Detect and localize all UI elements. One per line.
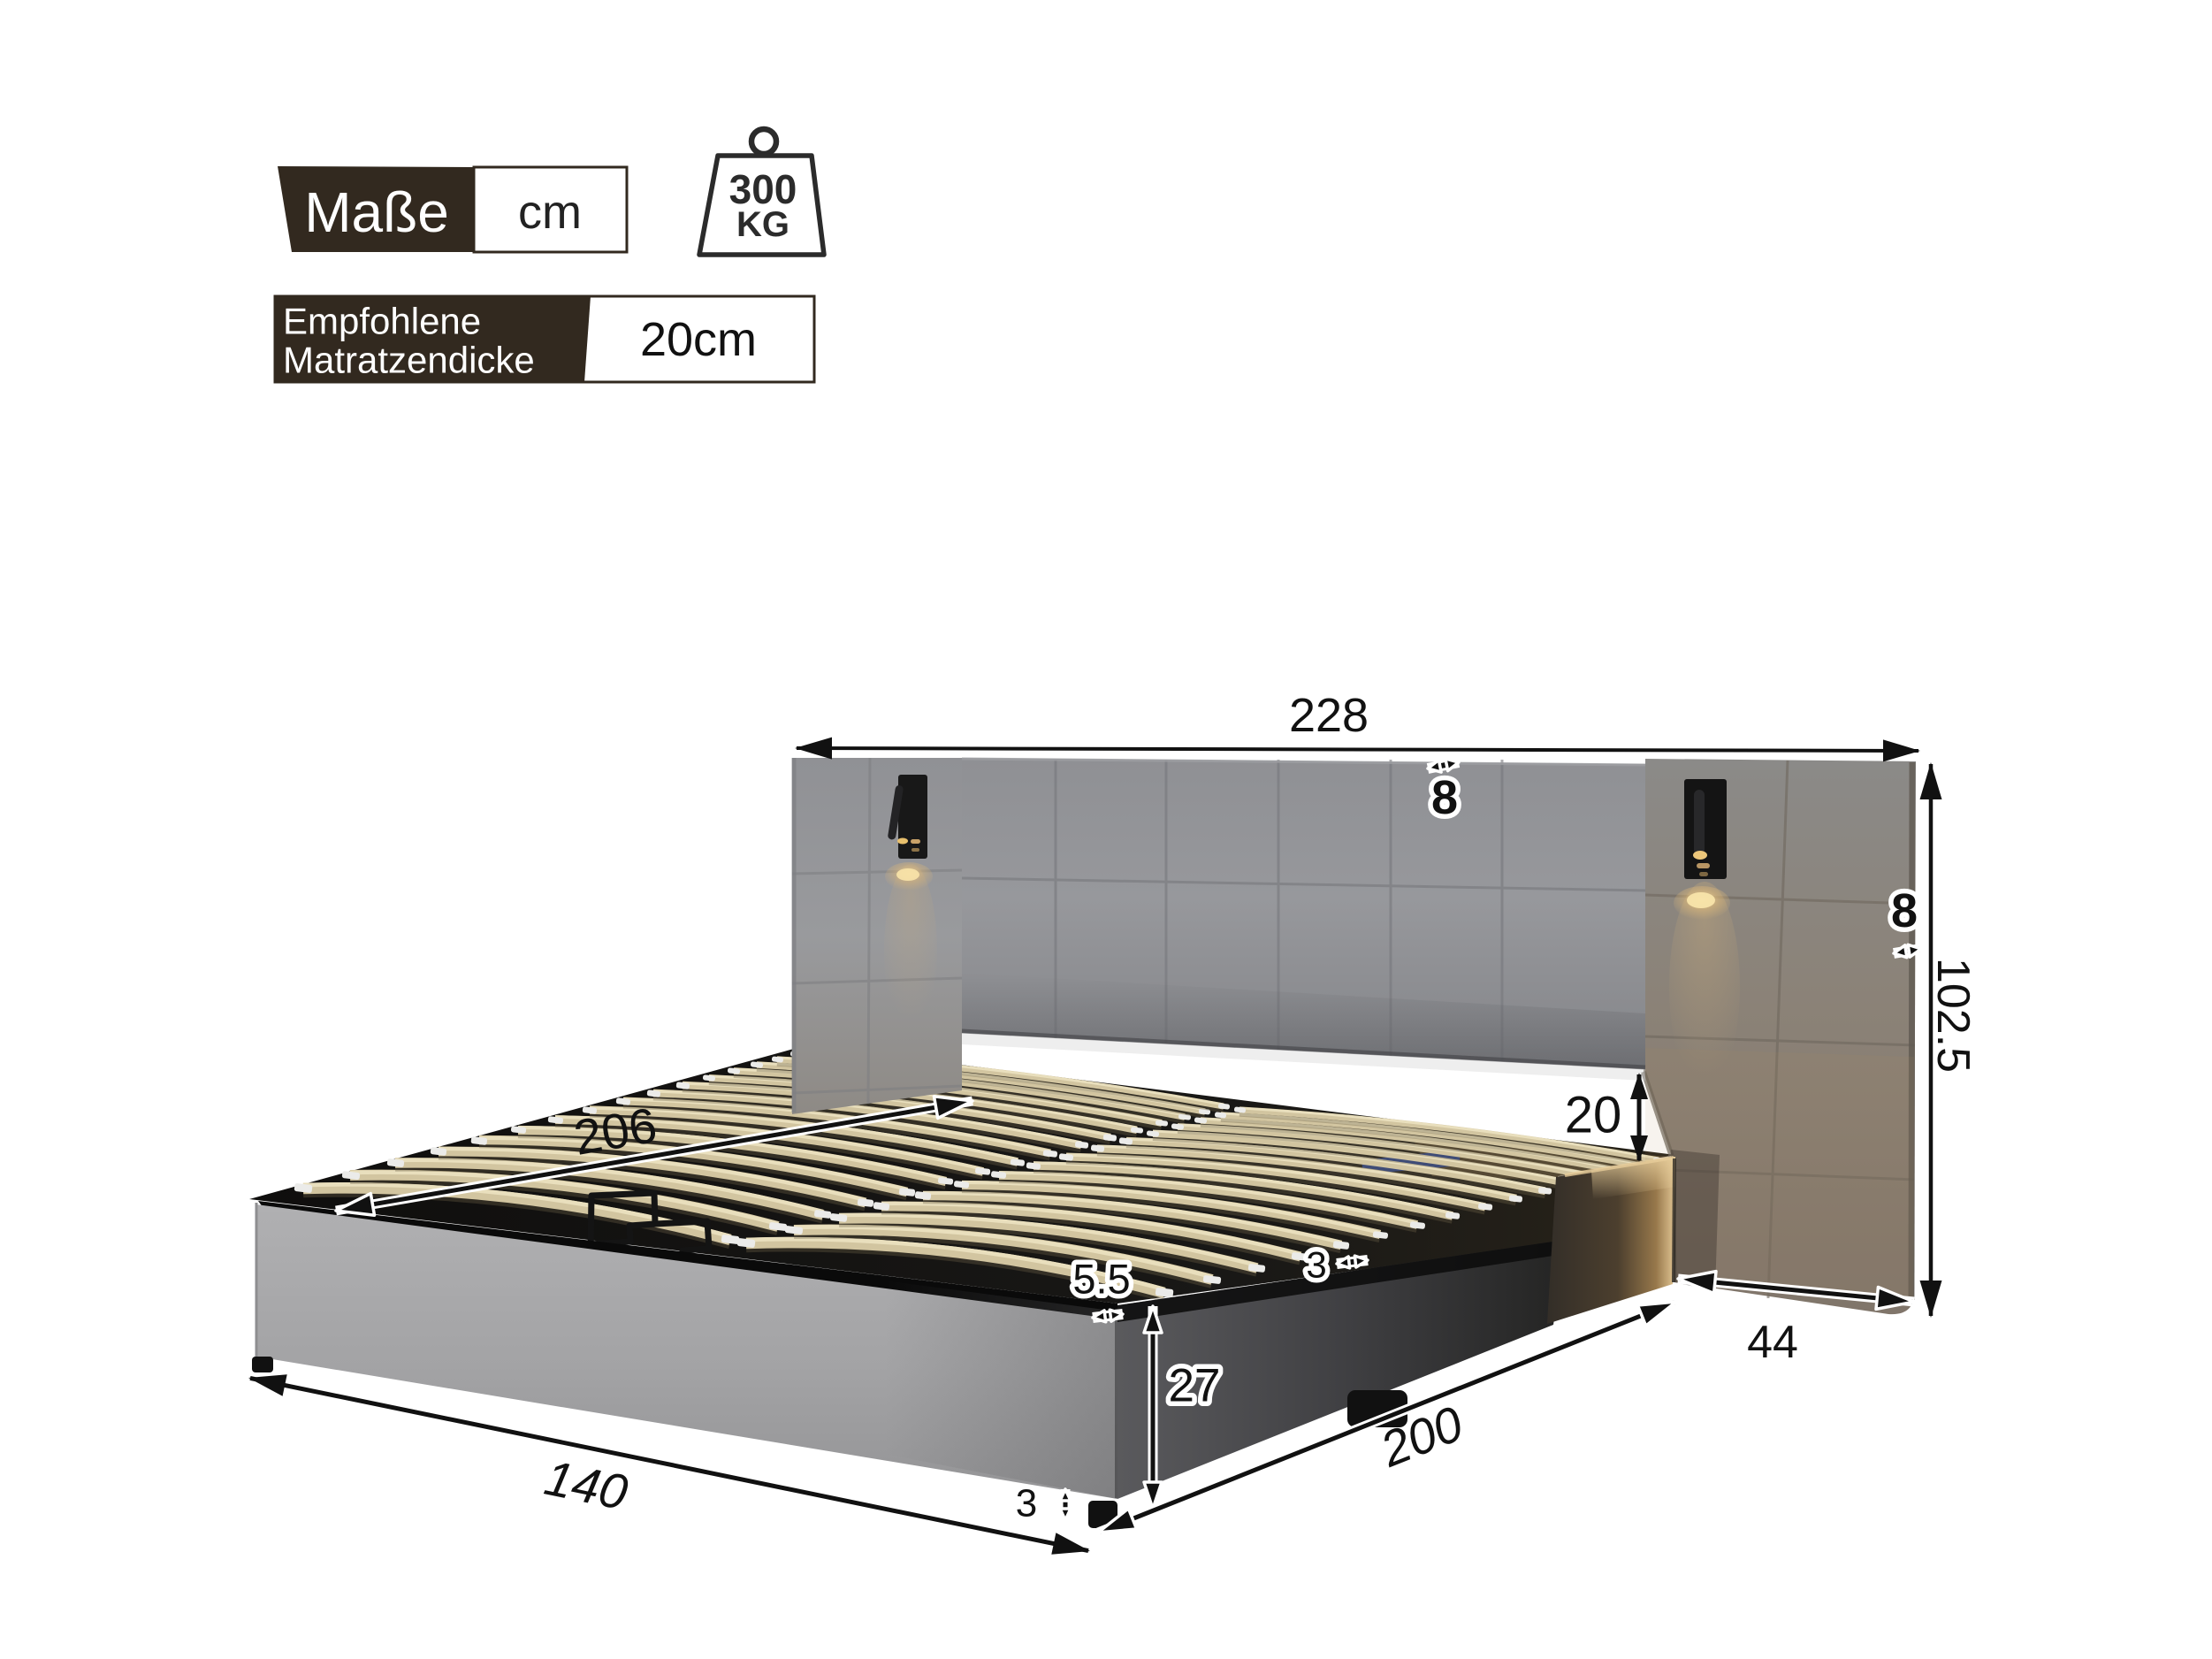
svg-text:3: 3 <box>1016 1482 1037 1525</box>
svg-text:Empfohlene: Empfohlene <box>283 301 481 342</box>
svg-text:8: 8 <box>1431 771 1458 824</box>
svg-text:3: 3 <box>1306 1244 1326 1286</box>
svg-text:Maße: Maße <box>304 180 449 244</box>
svg-text:44: 44 <box>1747 1317 1798 1368</box>
svg-text:27: 27 <box>1169 1360 1221 1412</box>
svg-text:cm: cm <box>518 186 582 239</box>
svg-text:5.5: 5.5 <box>1072 1256 1130 1303</box>
svg-text:20cm: 20cm <box>640 313 757 366</box>
svg-text:Matratzendicke: Matratzendicke <box>283 340 535 381</box>
svg-text:KG: KG <box>736 205 789 244</box>
svg-text:8: 8 <box>1891 884 1918 937</box>
svg-text:228: 228 <box>1289 689 1369 742</box>
svg-text:102.5: 102.5 <box>1927 958 1979 1073</box>
svg-text:20: 20 <box>1565 1087 1622 1144</box>
